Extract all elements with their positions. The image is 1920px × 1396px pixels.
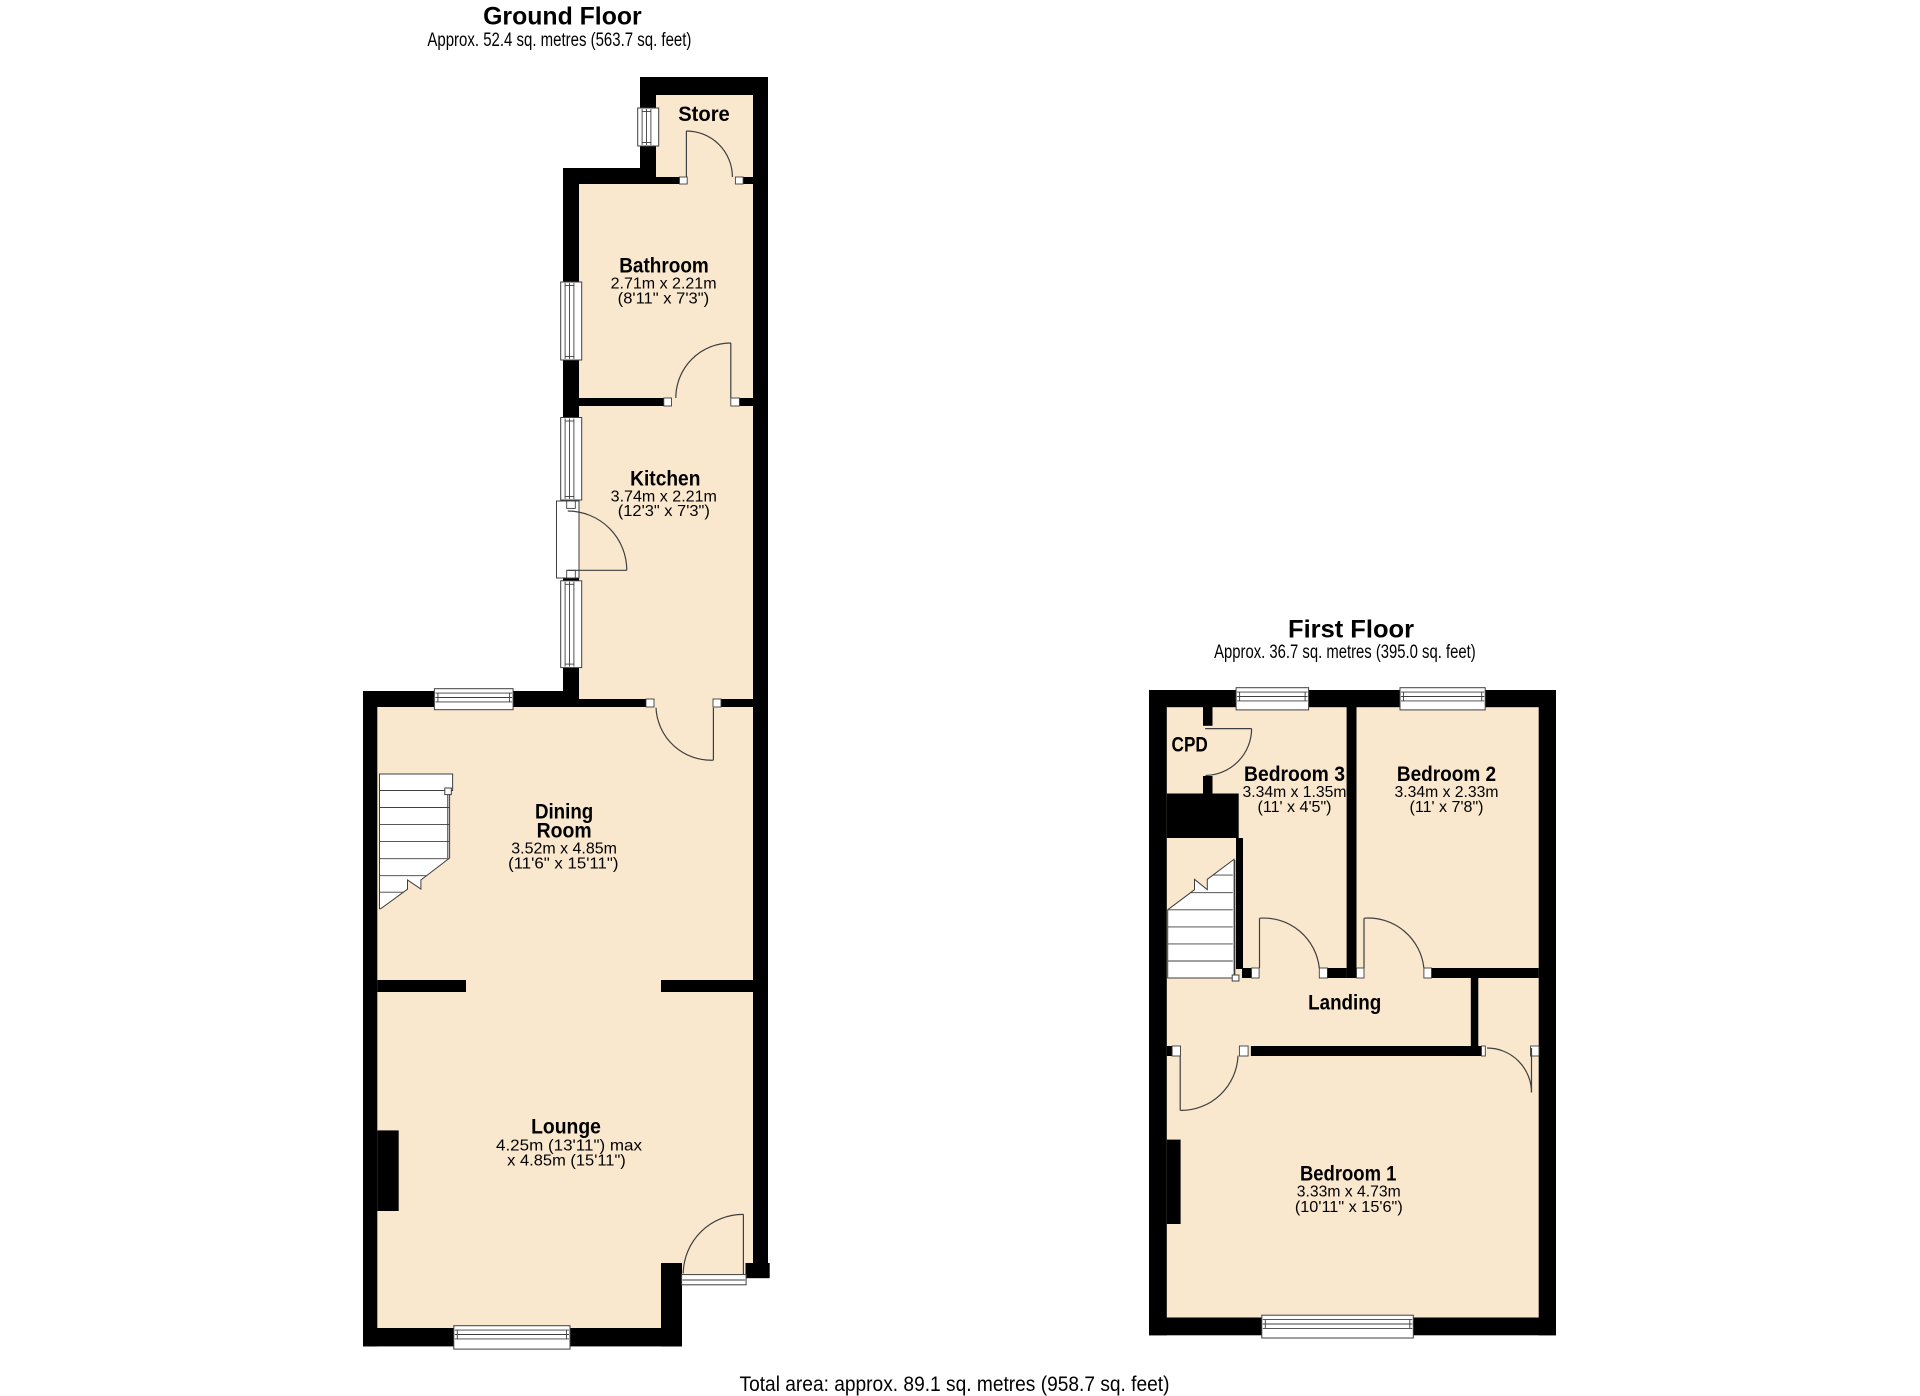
svg-text:Room: Room — [537, 819, 592, 843]
svg-text:Approx. 36.7 sq. metres (395.0: Approx. 36.7 sq. metres (395.0 sq. feet) — [1214, 642, 1476, 663]
svg-text:3.33m x 4.73m: 3.33m x 4.73m — [1297, 1183, 1401, 1200]
svg-text:(11'6" x 15'11"): (11'6" x 15'11") — [508, 856, 618, 873]
svg-text:(10'11" x 15'6"): (10'11" x 15'6") — [1295, 1199, 1403, 1216]
svg-text:Lounge: Lounge — [531, 1115, 601, 1139]
svg-text:Store: Store — [678, 102, 730, 126]
svg-text:Total area: approx. 89.1 sq. m: Total area: approx. 89.1 sq. metres (958… — [740, 1373, 1170, 1396]
svg-text:Bedroom 2: Bedroom 2 — [1397, 762, 1496, 786]
svg-text:Kitchen: Kitchen — [630, 466, 700, 490]
svg-text:(11' x 4'5"): (11' x 4'5") — [1258, 799, 1332, 816]
svg-text:Bedroom 3: Bedroom 3 — [1244, 762, 1345, 786]
svg-text:Bathroom: Bathroom — [619, 253, 709, 277]
svg-text:(8'11" x 7'3"): (8'11" x 7'3") — [618, 291, 709, 308]
svg-text:CPD: CPD — [1172, 732, 1208, 756]
svg-text:Ground Floor: Ground Floor — [483, 3, 642, 31]
svg-text:x 4.85m (15'11"): x 4.85m (15'11") — [507, 1152, 626, 1169]
svg-text:Bedroom 1: Bedroom 1 — [1300, 1162, 1397, 1186]
svg-text:First Floor: First Floor — [1288, 616, 1414, 644]
svg-text:(11' x 7'8"): (11' x 7'8") — [1410, 799, 1484, 816]
svg-text:(12'3" x 7'3"): (12'3" x 7'3") — [618, 503, 710, 520]
svg-text:Landing: Landing — [1308, 991, 1381, 1015]
svg-text:Approx. 52.4 sq. metres (563.7: Approx. 52.4 sq. metres (563.7 sq. feet) — [427, 30, 691, 51]
